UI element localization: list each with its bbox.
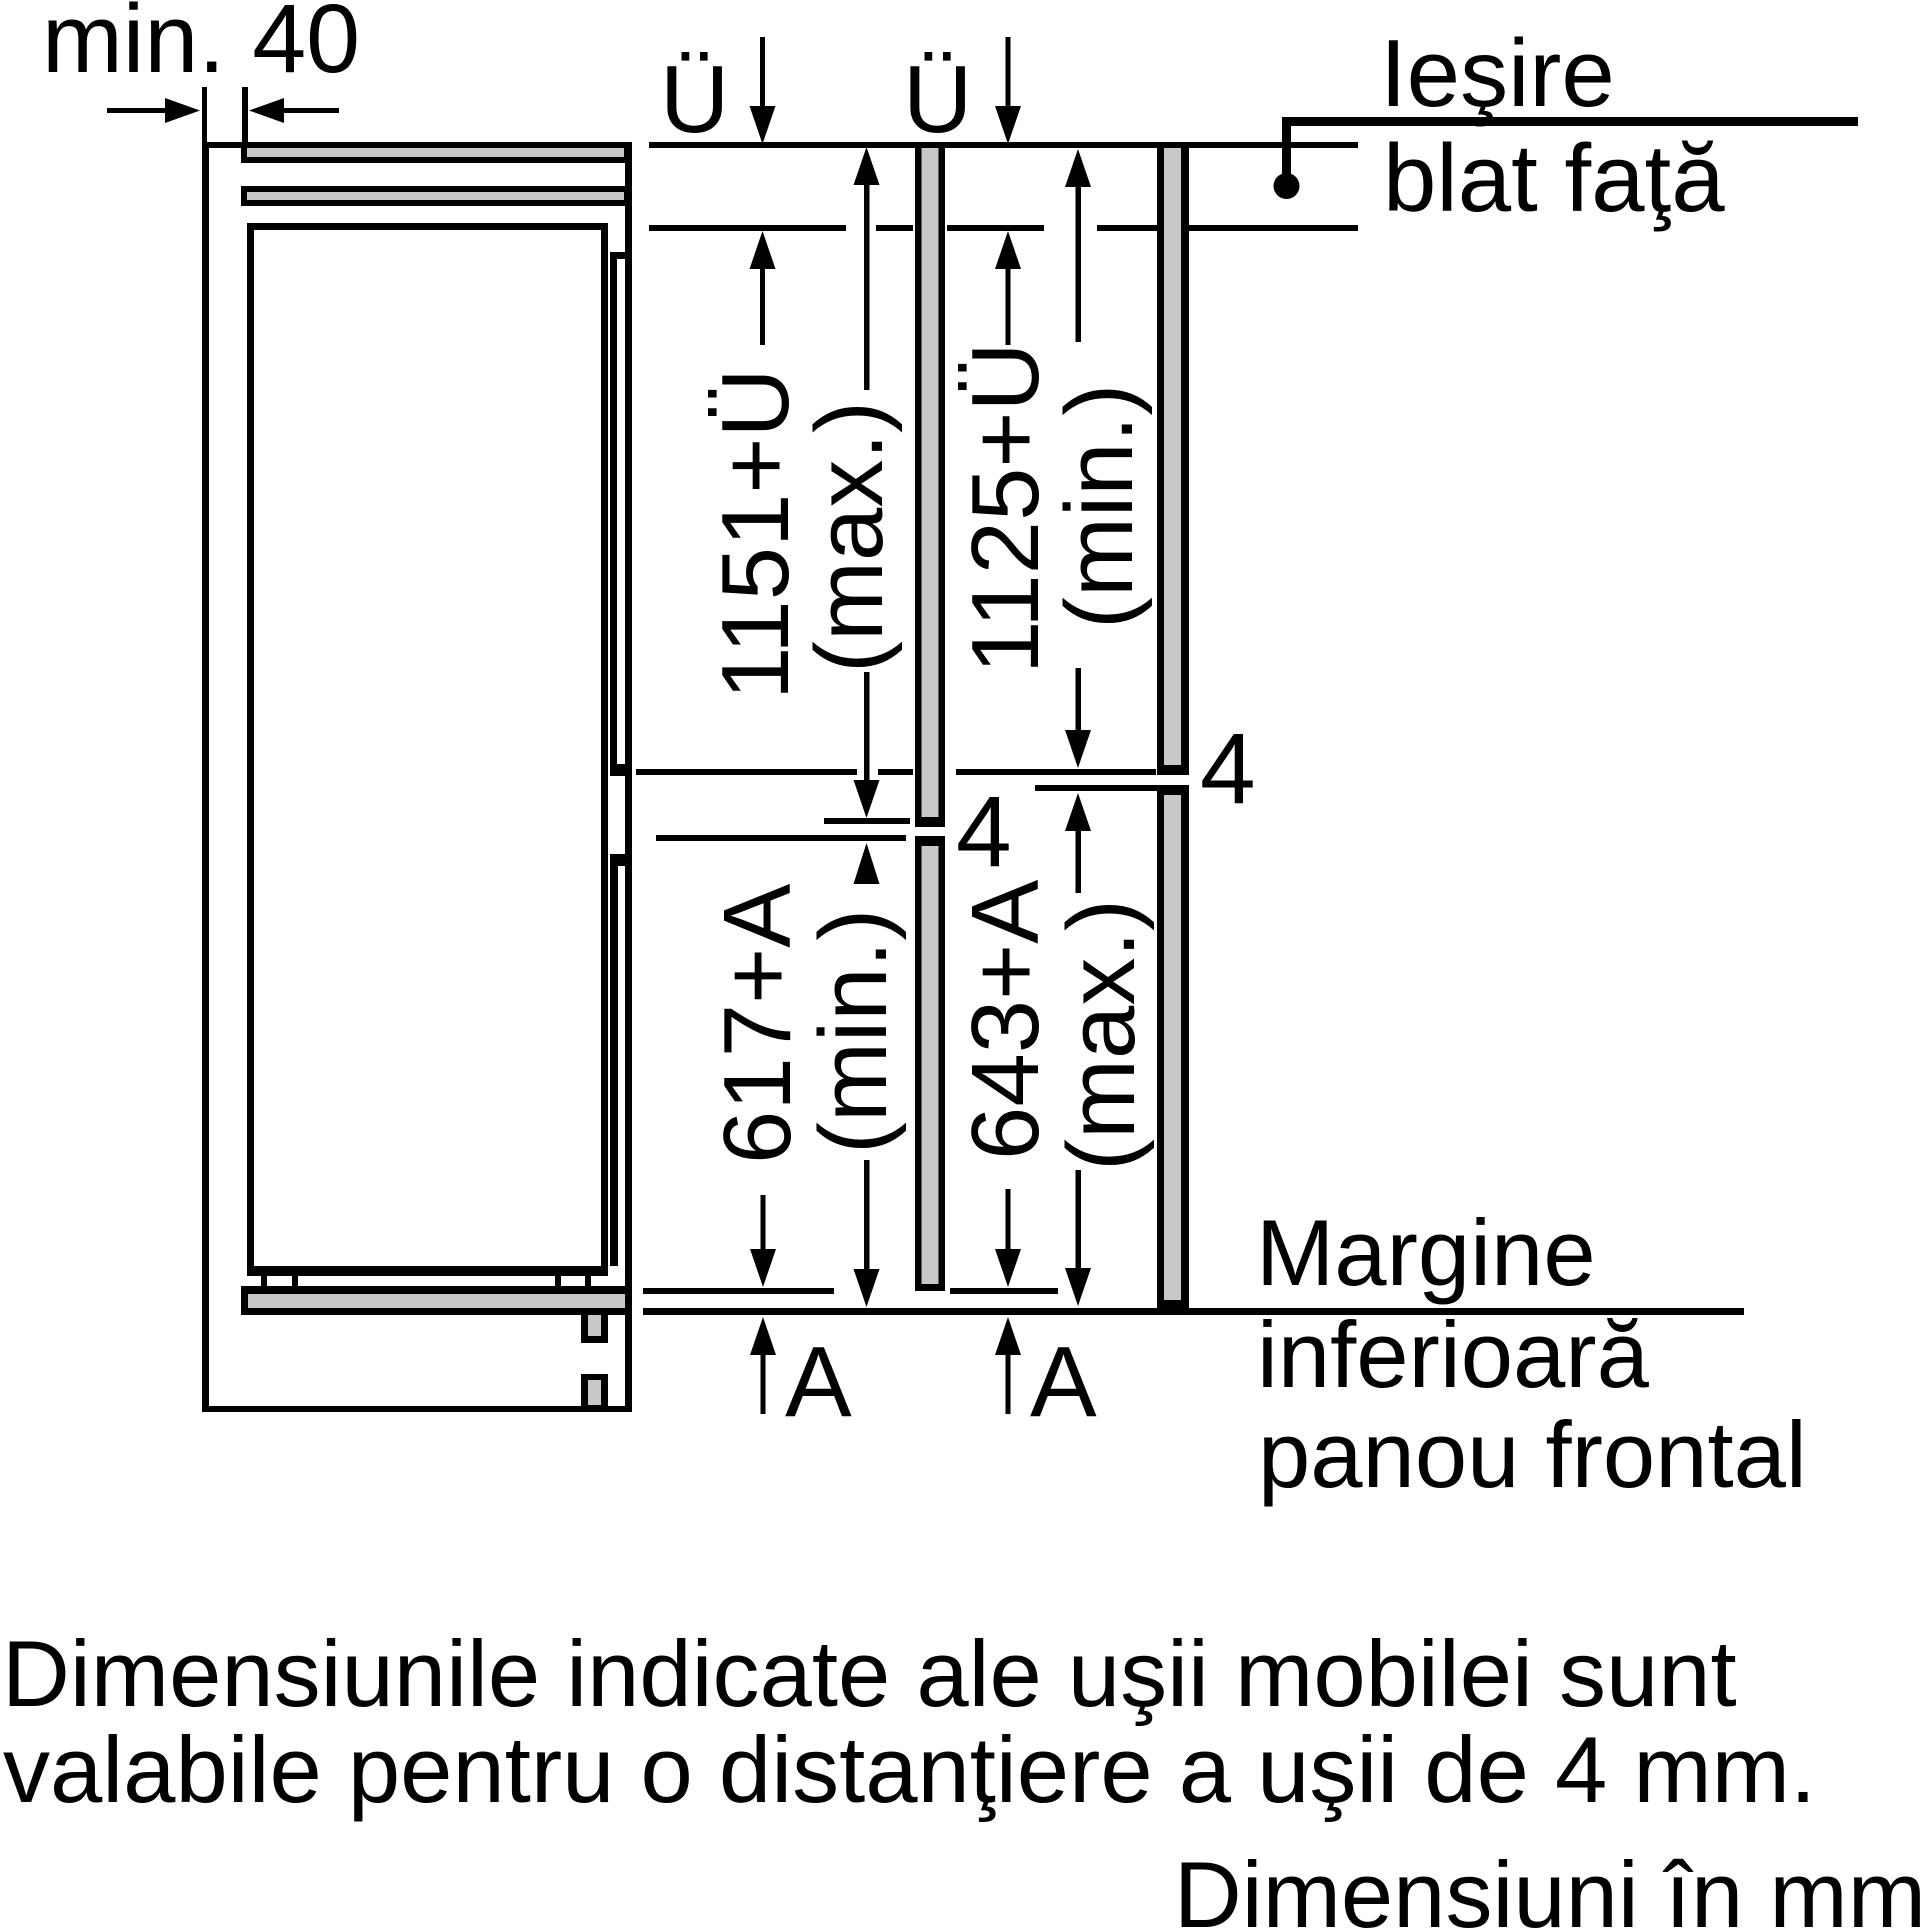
svg-text:(min.): (min.)	[800, 909, 907, 1154]
svg-text:Dimensiuni în mm: Dimensiuni în mm	[1174, 1842, 1926, 1928]
svg-text:4: 4	[1200, 713, 1256, 825]
svg-text:617+A: 617+A	[704, 884, 811, 1164]
svg-text:Ieşire: Ieşire	[1380, 20, 1615, 127]
svg-text:Margine: Margine	[1256, 1200, 1596, 1305]
svg-text:A: A	[1030, 1326, 1097, 1438]
svg-text:Dimensiunile indicate ale uşii: Dimensiunile indicate ale uşii mobilei s…	[2, 1621, 1737, 1726]
svg-text:4: 4	[956, 776, 1012, 888]
svg-text:1151+Ü: 1151+Ü	[702, 368, 809, 700]
svg-text:min. 40: min. 40	[42, 0, 360, 93]
svg-text:(max.): (max.)	[1048, 899, 1155, 1171]
svg-text:valabile pentru o distanţiere: valabile pentru o distanţiere a uşii de …	[3, 1717, 1816, 1822]
svg-text:(max.): (max.)	[796, 401, 903, 673]
svg-text:blat faţă: blat faţă	[1383, 125, 1725, 232]
svg-text:(min.): (min.)	[1046, 384, 1153, 629]
svg-text:Ü: Ü	[660, 46, 729, 153]
svg-text:643+A: 643+A	[952, 880, 1059, 1160]
svg-text:1125+Ü: 1125+Ü	[952, 342, 1059, 674]
svg-text:A: A	[785, 1326, 852, 1438]
svg-text:inferioară: inferioară	[1257, 1302, 1650, 1407]
svg-text:Ü: Ü	[903, 46, 972, 153]
svg-text:panou frontal: panou frontal	[1258, 1402, 1807, 1507]
